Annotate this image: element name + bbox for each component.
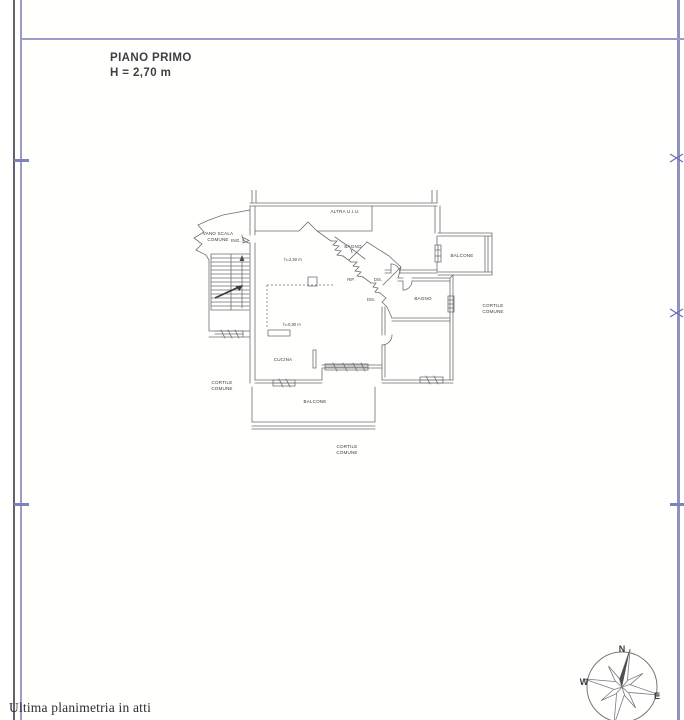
kitchen-balcony-door [273,379,295,387]
note-h250: h=2,50 m [284,257,302,262]
bathroom-right-door-swing [403,281,412,290]
area-label-cortile-bottom-2: COMUNE [336,450,357,455]
compass-rose: N W E [578,642,668,720]
title-block: PIANO PRIMO H = 2,70 m [110,51,192,81]
frame-tick-left-lower [14,503,29,506]
area-label-cortile-right: CORTILE [483,303,504,308]
bathroom-right [392,275,454,380]
frame-tick-right-lower [670,503,684,506]
wall-top-altra-uiu [250,190,437,206]
wall-living-partition [382,307,385,380]
wall-camera-bottom [385,264,437,273]
room-label-vano-scala-2: COMUNE [207,237,228,242]
staircase [211,254,249,310]
dashed-ceiling-line [267,285,335,328]
column-square [308,277,317,286]
frame-gray-line-left [13,0,15,720]
footer-caption: Ultima planimetria in atti [9,700,151,716]
room-label-bagno-right: BAGNO [414,296,432,301]
room-label-balcone-bottom: BALCONE [303,399,326,404]
living-window [325,363,368,371]
room-label-balcone-right: BALCONE [450,253,473,258]
frame-tick-left-upper [14,159,29,162]
frame-blue-line-left [20,0,22,720]
zigzag-2 [351,262,363,277]
compass-label-north: N [619,644,626,654]
floor-plan: ALTRA U.I.U. VANO SCALA COMUNE ING. h=2,… [185,190,515,470]
ceiling-height-note: H = 2,70 m [110,66,192,81]
room-label-vano-scala: VANO SCALA [203,231,234,236]
room-label-cucina: CUCINA [274,357,293,362]
area-label-cortile-bottom: CORTILE [337,444,358,449]
wall-left [250,206,255,383]
frame-cross-right-mid [669,305,684,321]
room-label-rip: RIP. [347,277,355,282]
bedroom-window [420,376,443,384]
room-label-dis-upper: DIS. [374,277,382,282]
balcony-right [435,206,492,275]
kitchen-stack [313,350,316,368]
frame-blue-line-right [677,0,680,720]
room-label-bagno-top: BAGNO [344,244,362,249]
compass-label-east: E [654,691,660,701]
zigzag-3 [371,283,380,293]
note-h080: h=0,80 m [283,322,301,327]
entrance-door [242,235,250,243]
walls-bottom [215,330,453,387]
scanned-floorplan-sheet: PIANO PRIMO H = 2,70 m [0,0,684,720]
page-title: PIANO PRIMO [110,51,192,66]
balcony-bottom-outline [252,387,375,429]
compass-label-west: W [580,677,589,687]
area-label-cortile-right-2: COMUNE [482,309,503,314]
area-label-cortile-left-2: COMUNE [211,386,232,391]
area-label-cortile-left: CORTILE [212,380,233,385]
bedroom-door-swing [382,335,392,345]
zigzag-1 [331,241,343,256]
low-wall-080 [268,330,290,336]
room-label-dis-lower: DIS. [367,297,375,302]
balcony-right-door-window [435,245,441,262]
room-label-ing: ING. [231,238,241,243]
frame-blue-line-top [21,38,684,40]
frame-cross-right-upper [669,150,684,166]
room-label-altra-uiu: ALTRA U.I.U. [330,209,359,214]
